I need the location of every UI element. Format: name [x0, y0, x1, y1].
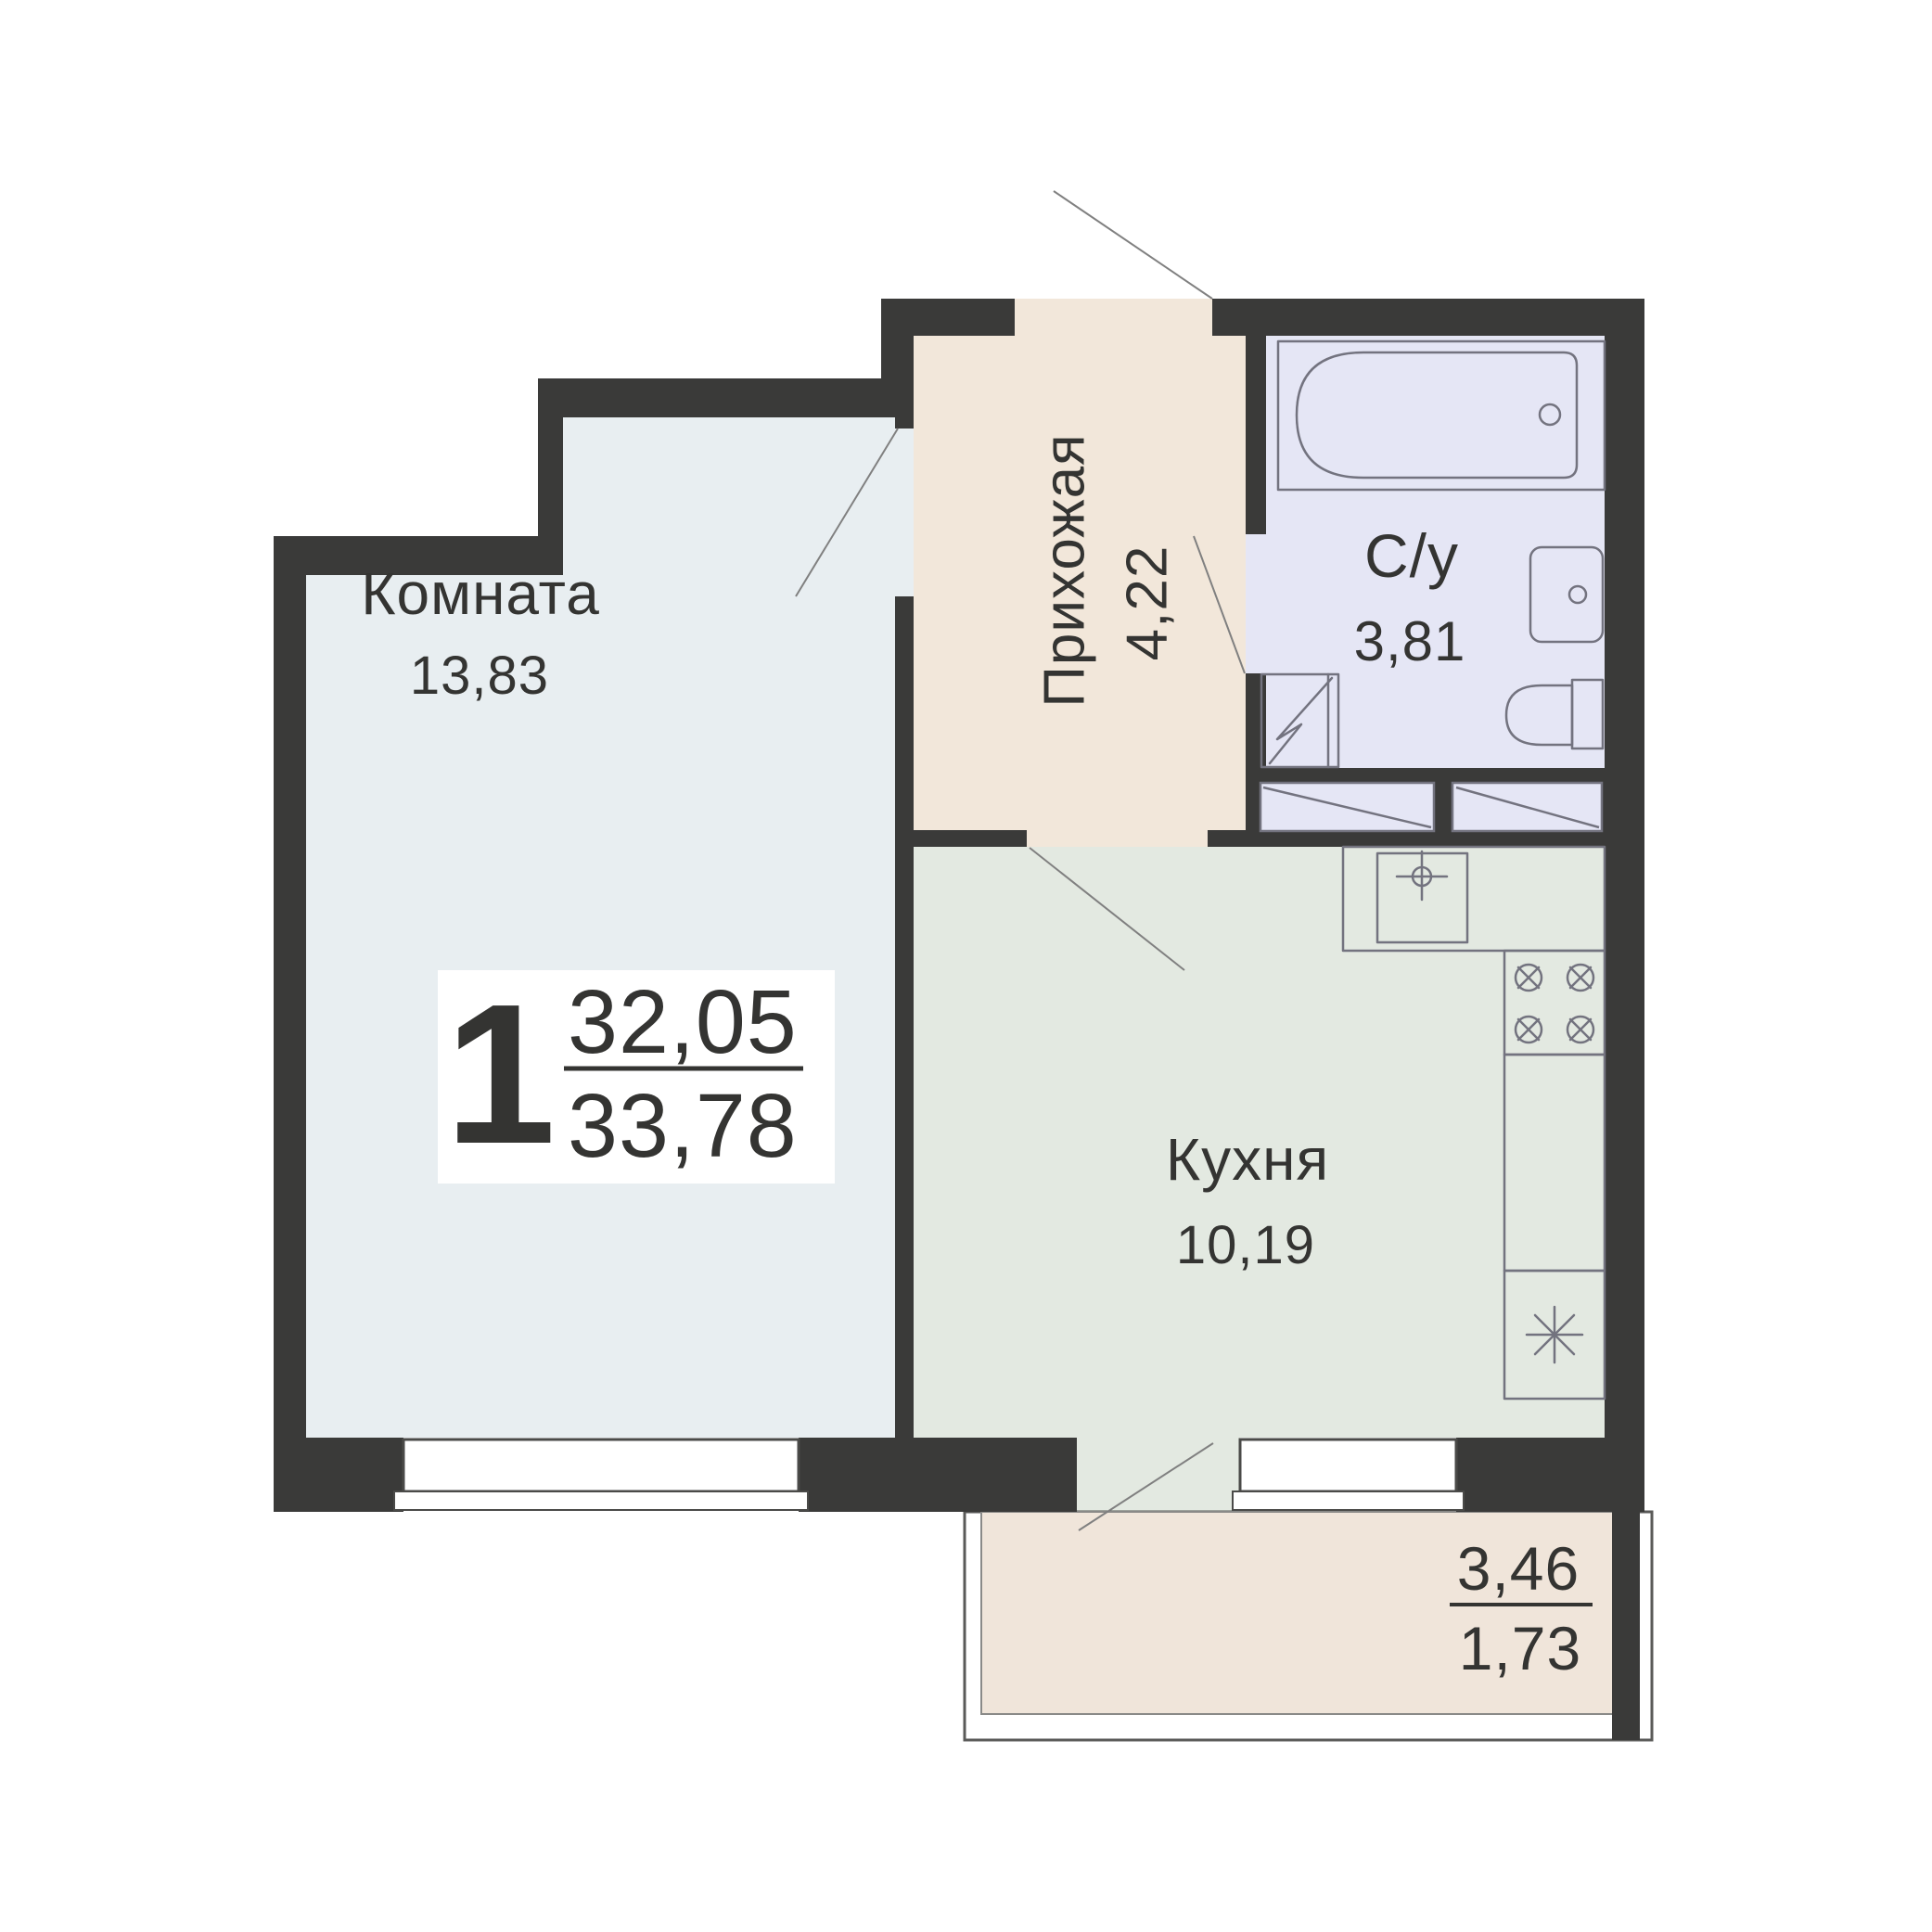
bathroom-area: 3,81	[1354, 610, 1466, 672]
kitchen-area: 10,19	[1176, 1215, 1315, 1275]
hallway-kitchen-door-gap	[1027, 830, 1208, 847]
summary-badge: 1 32,05 33,78	[438, 962, 835, 1185]
kitchen-window	[1233, 1439, 1464, 1510]
living-room-window	[394, 1439, 808, 1510]
wall-bottom-left	[274, 1438, 403, 1512]
entrance-door-gap	[1015, 299, 1212, 336]
floor-plan-page: Комната 13,83 Прихожая 4,22 С/у 3,81 Кух…	[0, 0, 1932, 1932]
wall-left	[274, 536, 306, 1512]
bathroom-door-gap	[1246, 534, 1266, 673]
hallway-name: Прихожая	[1033, 433, 1097, 707]
balcony-area-total: 3,46	[1457, 1534, 1580, 1603]
wall-hall-bath-lower	[1246, 673, 1266, 768]
wall-hall-kitchen-left	[914, 830, 1027, 847]
summary-living-area: 32,05	[568, 971, 798, 1072]
room-fills	[306, 299, 1605, 1512]
wall-divider-main	[895, 596, 914, 1438]
summary-room-count: 1	[445, 962, 557, 1185]
living-room-area: 13,83	[410, 646, 549, 706]
kitchen-name: Кухня	[1166, 1126, 1329, 1193]
balcony-door-gap	[1077, 1438, 1240, 1512]
wall-bottom-right	[1456, 1438, 1644, 1512]
summary-total-area: 33,78	[568, 1075, 798, 1176]
wall-divider-stub	[895, 417, 914, 429]
wall-bottom-center	[799, 1438, 1077, 1512]
wall-right	[1605, 299, 1644, 1512]
hallway-area: 4,22	[1116, 545, 1180, 661]
wall-room-top	[538, 378, 914, 417]
balcony-area-coef: 1,73	[1459, 1614, 1581, 1683]
living-room-name: Комната	[361, 560, 600, 627]
wall-entry-top-left	[881, 299, 1015, 336]
ventilation-shafts	[1260, 783, 1602, 831]
wall-entry-top-right	[1212, 299, 1644, 336]
wall-hall-bath-upper	[1246, 336, 1266, 534]
bathroom-name: С/у	[1364, 521, 1459, 590]
entrance-door-swing-line	[1054, 191, 1212, 299]
living-room-door-gap	[895, 429, 914, 596]
floor-plan-drawing: Комната 13,83 Прихожая 4,22 С/у 3,81 Кух…	[0, 0, 1932, 1932]
wall-hall-kitchen-right	[1208, 830, 1246, 847]
wall-right-balcony-strip	[1612, 1512, 1640, 1740]
